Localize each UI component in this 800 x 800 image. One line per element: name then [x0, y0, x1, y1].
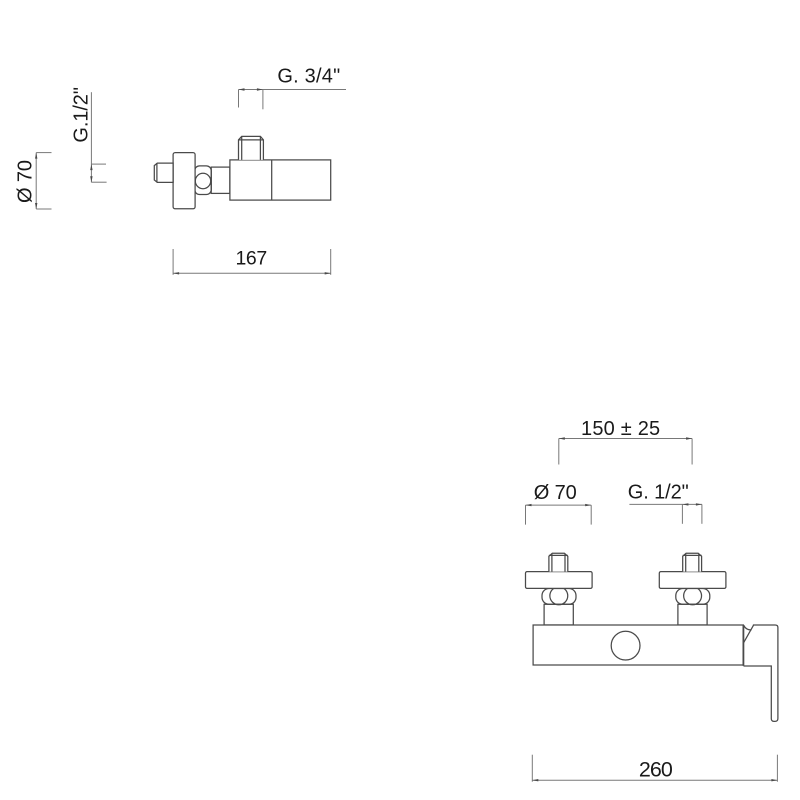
svg-text:G. 1/2": G. 1/2": [628, 482, 689, 504]
svg-text:Ø 70: Ø 70: [534, 482, 577, 504]
svg-text:G. 3/4": G. 3/4": [277, 66, 340, 88]
svg-text:150 ± 25: 150 ± 25: [581, 418, 660, 440]
svg-text:G.1/2": G.1/2": [71, 87, 93, 142]
svg-text:260: 260: [639, 758, 673, 782]
svg-text:Ø 70: Ø 70: [15, 160, 37, 203]
svg-text:167: 167: [235, 247, 267, 269]
